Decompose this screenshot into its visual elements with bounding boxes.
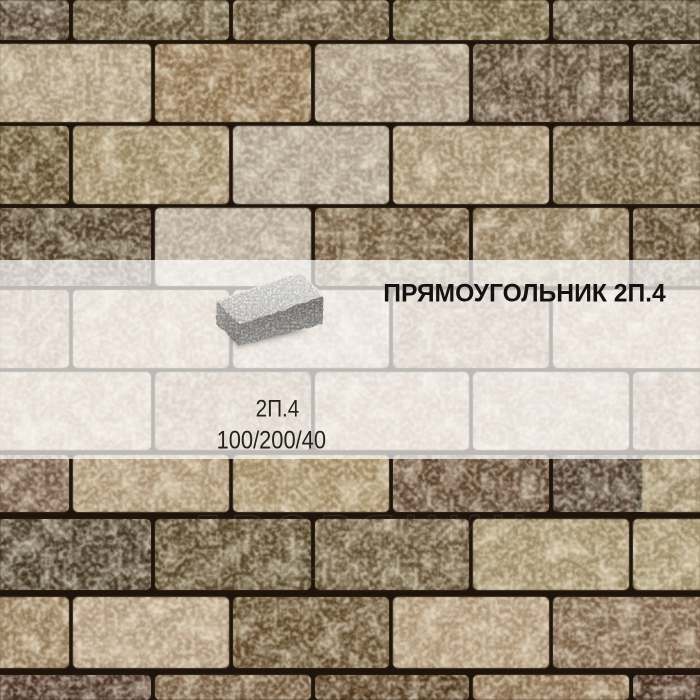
svg-text:2П.4: 2П.4 bbox=[256, 394, 300, 422]
svg-text:100/200/40: 100/200/40 bbox=[217, 426, 326, 454]
svg-text:ПРЯМОУГОЛЬНИК 2П.4: ПРЯМОУГОЛЬНИК 2П.4 bbox=[383, 280, 666, 307]
svg-text:ДВОРЯНИН: ДВОРЯНИН bbox=[188, 506, 535, 561]
svg-text:dvor-plit.com.ru: dvor-plit.com.ru bbox=[283, 558, 440, 585]
